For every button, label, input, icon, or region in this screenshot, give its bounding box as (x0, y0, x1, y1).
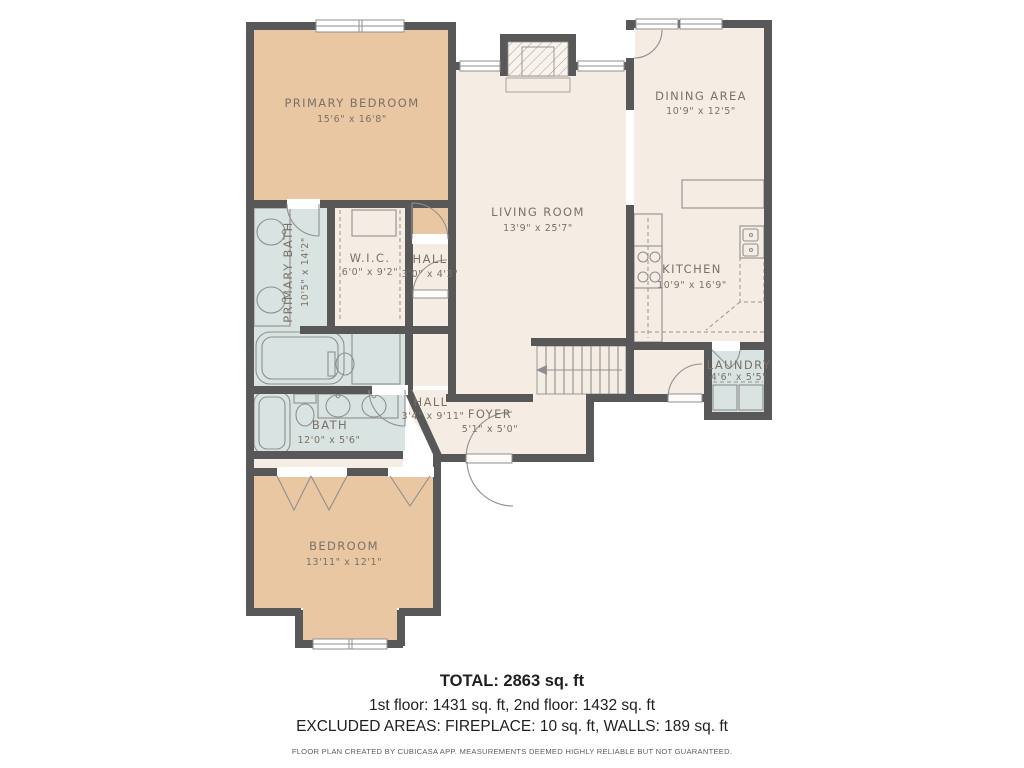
primary-bedroom-label: PRIMARY BEDROOM (284, 96, 419, 110)
hall-lower-dims: 3'4" x 9'11" (401, 411, 464, 422)
floor-plan-drawing: PRIMARY BEDROOM 15'6" x 16'8" DINING ARE… (0, 0, 1024, 768)
window-living-left (460, 61, 500, 71)
bedroom-dims: 13'11" x 12'1" (306, 557, 382, 568)
rear-hallway-area (634, 350, 704, 394)
kitchen-dims: 10'9" x 16'9" (657, 280, 727, 291)
staircase (536, 346, 626, 394)
window-primary-bedroom (316, 20, 404, 32)
foyer-dims: 5'1" x 5'0" (462, 424, 518, 435)
bedroom-label: BEDROOM (309, 539, 379, 553)
window-bedroom-bay (313, 639, 387, 649)
laundry-dims: 4'6" x 5'5" (711, 372, 767, 383)
hallway-door-leaf (668, 394, 702, 402)
dining-area-label: DINING AREA (655, 89, 747, 103)
wic-label: W.I.C. (350, 251, 391, 265)
bedroom-closet-gap (277, 467, 347, 477)
hall-upper-label: HALL (413, 252, 448, 266)
bedroom-bay-area (303, 600, 397, 640)
floor-areas-text: 1st floor: 1431 sq. ft, 2nd floor: 1432 … (0, 697, 1024, 715)
hall-lower-label: HALL (414, 395, 449, 409)
bath-dims: 12'0" x 5'6" (297, 435, 360, 446)
excluded-areas-text: EXCLUDED AREAS: FIREPLACE: 10 sq. ft, WA… (0, 718, 1024, 736)
fireplace-hearth (506, 78, 570, 92)
window-dining-1 (636, 19, 678, 29)
living-room-dims: 13'9" x 25'7" (503, 223, 573, 234)
dining-door-gap (625, 30, 635, 58)
primary-bath-door-gap (287, 199, 320, 209)
laundry-door-gap (712, 341, 740, 351)
hall-upper-dims: 3'0" x 4'3" (402, 269, 458, 280)
entry-door-leaf (466, 454, 512, 463)
hall-closet-door-leaf (413, 290, 448, 298)
dining-area-dims: 10'9" x 12'5" (666, 106, 736, 117)
primary-bath-dims: 10'5" x 14'2" (300, 237, 311, 307)
bath-door-gap (372, 385, 408, 395)
primary-bedroom-door-gap (412, 234, 448, 244)
floor-plan-page: PRIMARY BEDROOM 15'6" x 16'8" DINING ARE… (0, 0, 1024, 768)
entry-door-swing-out (467, 462, 513, 506)
window-living-right (578, 61, 624, 71)
dining-kitchen-area (634, 28, 764, 342)
primary-bedroom-dims: 15'6" x 16'8" (317, 114, 387, 125)
primary-bath-label: PRIMARY BATH (281, 221, 295, 322)
wic-dims: 6'0" x 9'2" (342, 267, 398, 278)
disclaimer-text: FLOOR PLAN CREATED BY CUBICASA APP. MEAS… (0, 747, 1024, 756)
total-area-text: TOTAL: 2863 sq. ft (0, 672, 1024, 691)
fireplace (500, 34, 576, 92)
primary-bath-tub-area (327, 334, 405, 386)
kitchen-label: KITCHEN (662, 262, 722, 276)
foyer-label: FOYER (468, 407, 512, 421)
window-dining-2 (680, 19, 722, 29)
bedroom-door-gap (388, 467, 434, 477)
living-room-label: LIVING ROOM (491, 205, 585, 219)
laundry-label: LAUNDRY (707, 358, 772, 372)
bath-label: BATH (312, 418, 348, 432)
